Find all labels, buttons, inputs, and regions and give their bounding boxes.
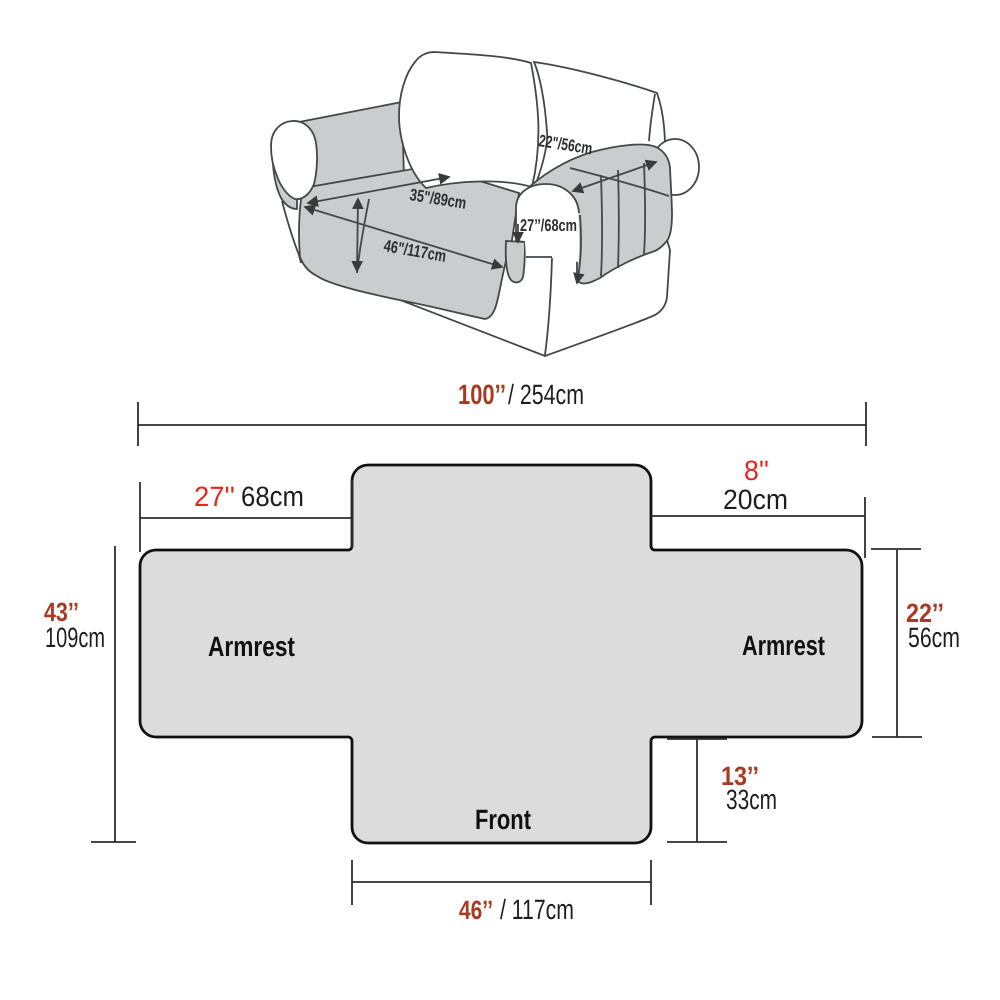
svg-text:46’’: 46’’ [459,895,493,925]
svg-text:Armrest: Armrest [742,630,825,661]
svg-text:20cm: 20cm [723,484,788,515]
svg-text:33cm: 33cm [726,784,777,815]
svg-text:109cm: 109cm [45,622,105,653]
svg-text:27'': 27'' [194,481,235,512]
svg-text:Front: Front [475,804,531,835]
svg-text:/ 254cm: / 254cm [508,379,584,410]
svg-text:100’’: 100’’ [458,379,506,410]
svg-text:/ 117cm: / 117cm [500,894,574,925]
svg-text:8'': 8'' [744,455,769,486]
svg-text:68cm: 68cm [241,481,304,512]
svg-text:27’’/68cm: 27’’/68cm [520,216,577,235]
svg-text:56cm: 56cm [908,622,960,653]
svg-text:Armrest: Armrest [208,631,295,662]
